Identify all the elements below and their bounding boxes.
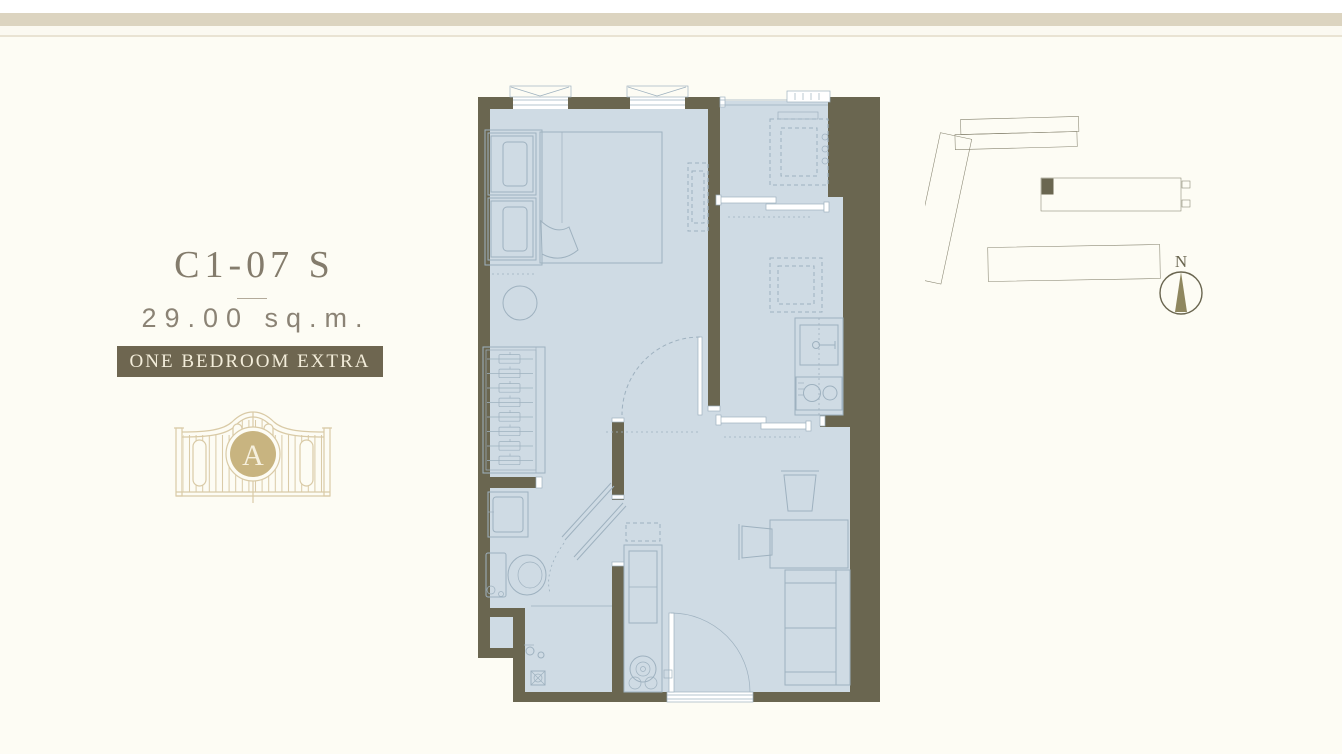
site-plan: N xyxy=(925,112,1215,327)
top-border-band xyxy=(0,13,1342,26)
gate-post-right xyxy=(324,428,330,496)
building-wing-bottom xyxy=(988,245,1161,282)
top-white-strip xyxy=(0,0,1342,13)
building-wing-middle xyxy=(1041,178,1190,211)
floor-plan xyxy=(478,85,880,707)
gate-post-left xyxy=(176,428,182,496)
logo-monogram: A xyxy=(242,439,264,472)
unit-type-badge: ONE BEDROOM EXTRA xyxy=(117,346,383,377)
highlighted-unit xyxy=(1042,179,1054,195)
unit-area: 29.00 sq.m. xyxy=(2,303,502,334)
unit-code: C1-07 S xyxy=(2,243,502,287)
building-wing-left xyxy=(925,133,972,284)
title-divider xyxy=(237,298,267,299)
vent-grille xyxy=(787,91,830,102)
top-thin-rule xyxy=(0,35,1342,37)
top-band-gap xyxy=(0,26,1342,35)
compass-needle xyxy=(1175,272,1187,312)
gate-logo-icon: A xyxy=(173,408,333,508)
building-wing-top xyxy=(955,116,1080,149)
compass-label: N xyxy=(1175,252,1187,271)
unit-floor xyxy=(490,101,868,692)
brochure-page: C1-07 S 29.00 sq.m. ONE BEDROOM EXTRA A xyxy=(0,0,1342,754)
wardrobe xyxy=(483,347,545,473)
compass-icon: N xyxy=(1160,252,1202,314)
